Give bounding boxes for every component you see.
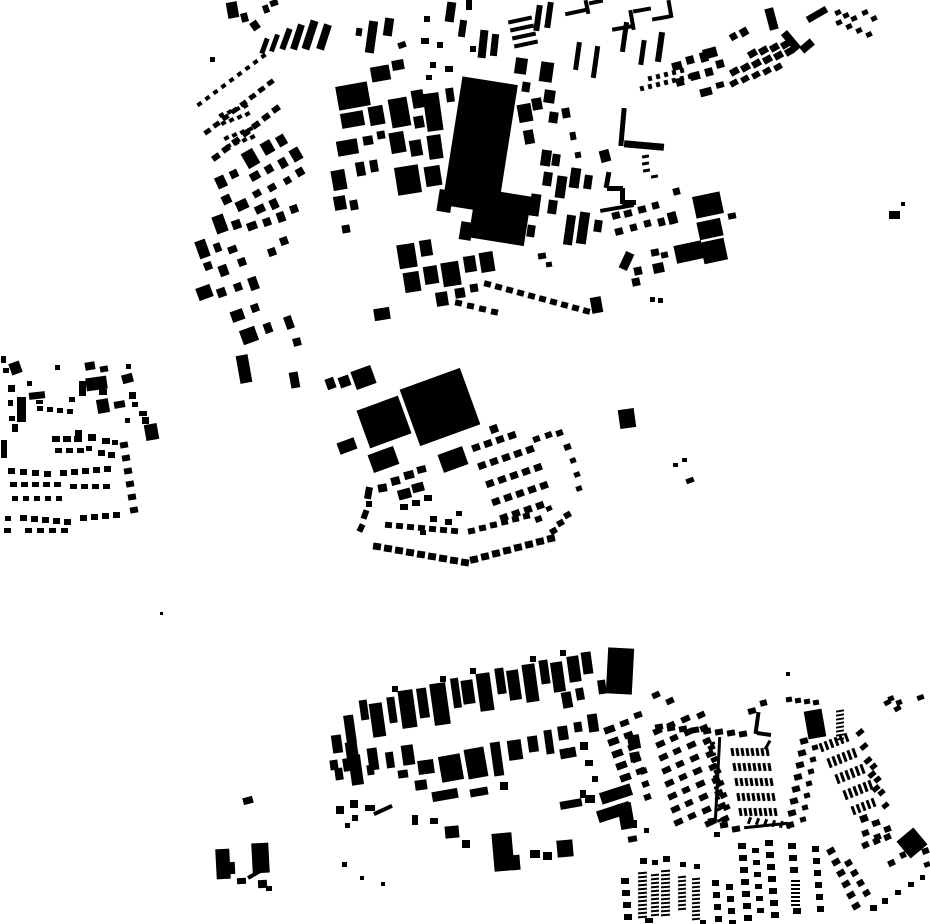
cluster-west-village xyxy=(1,356,159,533)
cluster-top-left-village xyxy=(194,0,407,389)
cluster-top-right-terraces xyxy=(565,0,905,303)
cluster-south-industrial xyxy=(329,647,645,886)
cluster-southwest-smallholdings xyxy=(215,796,272,891)
map-canvas xyxy=(0,0,930,924)
figure-ground-map xyxy=(0,0,930,924)
cluster-central-warehouses xyxy=(324,365,499,473)
cluster-southeast-suburb xyxy=(617,672,930,924)
